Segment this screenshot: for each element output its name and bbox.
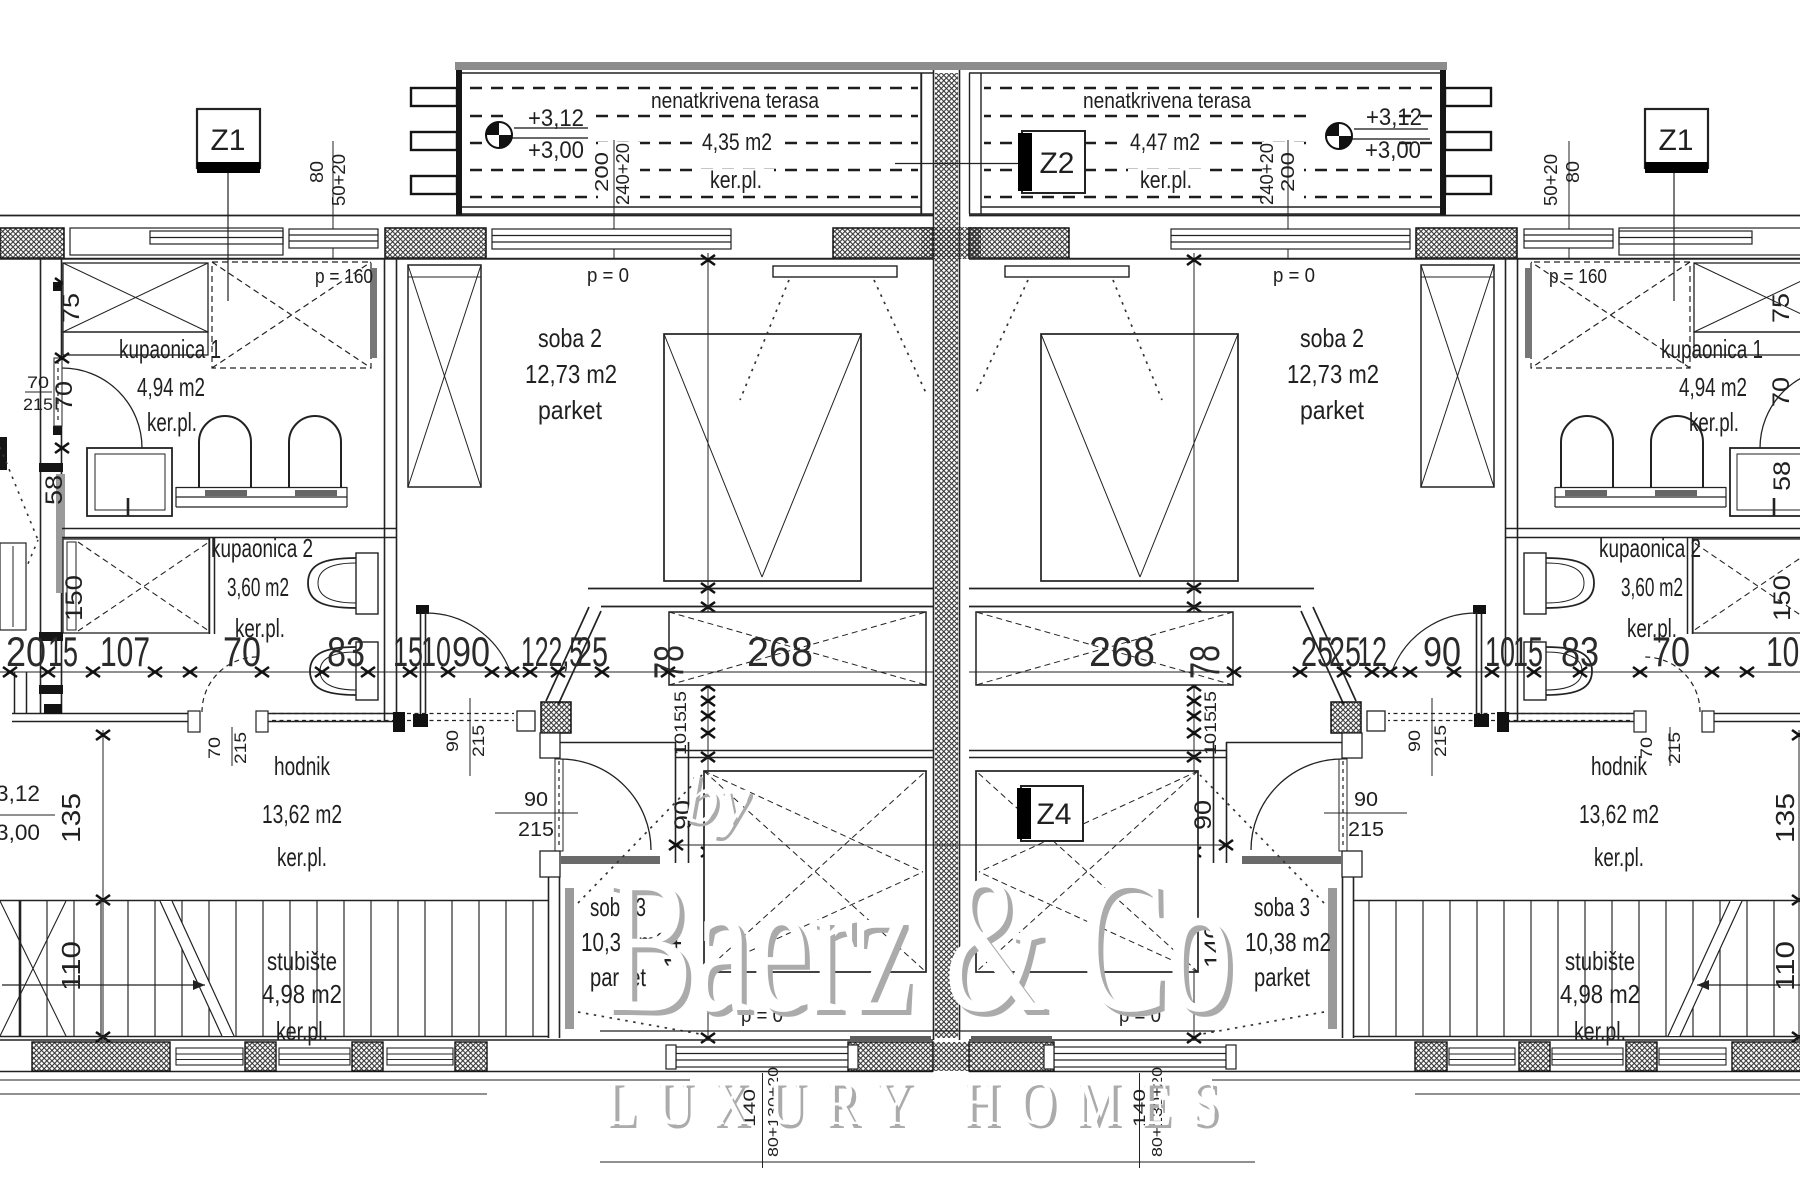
- svg-text:215: 215: [1665, 732, 1684, 764]
- svg-text:58: 58: [41, 475, 68, 505]
- svg-text:200: 200: [592, 152, 612, 192]
- svg-text:ker.pl.: ker.pl.: [147, 407, 197, 437]
- svg-text:+3,00: +3,00: [528, 137, 584, 164]
- svg-text:90: 90: [524, 789, 548, 811]
- svg-text:80: 80: [307, 161, 327, 183]
- svg-text:ker.pl.: ker.pl.: [1689, 407, 1739, 437]
- svg-text:15: 15: [1201, 711, 1220, 733]
- svg-text:hodnik: hodnik: [274, 751, 331, 781]
- svg-text:+3,12: +3,12: [1366, 104, 1422, 131]
- svg-text:parket: parket: [1254, 962, 1311, 992]
- svg-text:215: 215: [23, 395, 53, 414]
- svg-text:kupaonica 2: kupaonica 2: [1599, 533, 1701, 563]
- svg-text:+3,00: +3,00: [1365, 137, 1421, 164]
- svg-text:12,73 m2: 12,73 m2: [525, 359, 617, 389]
- svg-text:215: 215: [518, 819, 554, 841]
- svg-text:3,12: 3,12: [0, 781, 40, 806]
- svg-text:12,73 m2: 12,73 m2: [1287, 359, 1379, 389]
- svg-text:p = 0: p = 0: [587, 265, 629, 287]
- svg-text:3,60 m2: 3,60 m2: [1621, 572, 1683, 602]
- svg-text:80: 80: [1563, 161, 1583, 183]
- svg-text:90: 90: [1354, 789, 1378, 811]
- svg-text:70: 70: [27, 373, 49, 392]
- svg-text:78: 78: [1181, 645, 1228, 679]
- svg-text:25: 25: [576, 628, 608, 675]
- svg-text:107: 107: [1766, 628, 1800, 675]
- svg-text:4,94 m2: 4,94 m2: [137, 372, 205, 402]
- svg-text:ker.pl.: ker.pl.: [276, 1016, 328, 1046]
- svg-text:90: 90: [1190, 800, 1217, 830]
- svg-text:215: 215: [231, 732, 250, 764]
- svg-text:p = 160: p = 160: [1549, 266, 1607, 288]
- svg-text:215: 215: [1348, 819, 1384, 841]
- svg-text:58: 58: [1769, 461, 1796, 491]
- svg-text:ker.pl.: ker.pl.: [1594, 842, 1644, 872]
- svg-text:135: 135: [1770, 793, 1800, 843]
- svg-text:150: 150: [1769, 575, 1796, 621]
- svg-text:Z4: Z4: [1036, 798, 1071, 831]
- svg-text:kupaonica 1: kupaonica 1: [119, 334, 221, 364]
- svg-text:200: 200: [1278, 152, 1298, 192]
- svg-text:3,60 m2: 3,60 m2: [227, 572, 289, 602]
- svg-text:70: 70: [1768, 377, 1795, 407]
- svg-text:50+20: 50+20: [1541, 154, 1561, 206]
- svg-text:268: 268: [747, 628, 813, 675]
- svg-text:110: 110: [1770, 941, 1800, 991]
- svg-text:15: 15: [393, 628, 423, 675]
- svg-text:10: 10: [1485, 628, 1515, 675]
- svg-text:p = 0: p = 0: [1273, 265, 1315, 287]
- svg-text:107: 107: [100, 628, 150, 675]
- svg-text:soba 3: soba 3: [1254, 892, 1310, 922]
- svg-text:Z2: Z2: [1039, 147, 1074, 180]
- svg-text:kupaonica 2: kupaonica 2: [211, 533, 313, 563]
- svg-text:nenatkrivena terasa: nenatkrivena terasa: [1083, 88, 1252, 113]
- svg-text:3,00: 3,00: [0, 820, 40, 845]
- svg-text:Baerz & Co: Baerz & Co: [605, 836, 1233, 1053]
- svg-text:90: 90: [1405, 730, 1424, 752]
- svg-text:10: 10: [1201, 733, 1220, 755]
- svg-text:parket: parket: [1300, 395, 1365, 425]
- svg-text:stubište: stubište: [267, 946, 337, 976]
- svg-text:83: 83: [1561, 628, 1599, 675]
- svg-text:15: 15: [671, 711, 690, 733]
- svg-text:50+20: 50+20: [329, 154, 349, 206]
- svg-text:by: by: [684, 761, 751, 838]
- svg-text:240+20: 240+20: [1257, 143, 1277, 205]
- svg-text:Z1: Z1: [210, 124, 245, 157]
- svg-text:4,47 m2: 4,47 m2: [1130, 129, 1200, 156]
- svg-text:268: 268: [1089, 628, 1155, 675]
- svg-text:parket: parket: [538, 395, 603, 425]
- svg-text:15: 15: [671, 691, 690, 713]
- svg-text:70: 70: [223, 628, 261, 675]
- svg-text:4,35 m2: 4,35 m2: [702, 129, 772, 156]
- svg-text:135: 135: [56, 793, 86, 843]
- svg-text:4,98 m2: 4,98 m2: [1560, 979, 1640, 1009]
- svg-text:ker.pl.: ker.pl.: [710, 167, 762, 194]
- svg-text:4,94 m2: 4,94 m2: [1679, 372, 1747, 402]
- svg-text:90: 90: [443, 730, 462, 752]
- svg-text:15: 15: [1513, 628, 1543, 675]
- svg-text:90: 90: [452, 628, 490, 675]
- svg-text:240+20: 240+20: [613, 143, 633, 205]
- svg-text:110: 110: [56, 941, 86, 991]
- svg-text:ker.pl.: ker.pl.: [277, 842, 327, 872]
- svg-text:70: 70: [51, 381, 78, 411]
- svg-text:nenatkrivena terasa: nenatkrivena terasa: [651, 88, 820, 113]
- svg-text:10: 10: [421, 628, 451, 675]
- svg-text:75: 75: [1768, 293, 1795, 323]
- svg-text:20: 20: [6, 628, 46, 675]
- svg-text:90: 90: [1423, 628, 1461, 675]
- svg-text:15: 15: [1201, 691, 1220, 713]
- svg-text:13,62 m2: 13,62 m2: [1579, 799, 1659, 829]
- svg-text:10,38 m2: 10,38 m2: [1245, 927, 1331, 957]
- svg-text:kupaonica 1: kupaonica 1: [1661, 334, 1763, 364]
- svg-text:+3,12: +3,12: [528, 105, 584, 132]
- svg-text:215: 215: [1431, 725, 1450, 757]
- svg-text:150: 150: [61, 575, 88, 621]
- svg-text:soba 2: soba 2: [1300, 323, 1364, 353]
- svg-text:13,62 m2: 13,62 m2: [262, 799, 342, 829]
- svg-text:ker.pl.: ker.pl.: [1574, 1016, 1626, 1046]
- svg-text:stubište: stubište: [1565, 946, 1635, 976]
- svg-text:soba 2: soba 2: [538, 323, 602, 353]
- svg-text:hodnik: hodnik: [1591, 751, 1648, 781]
- svg-text:70: 70: [205, 737, 224, 759]
- svg-text:p = 160: p = 160: [315, 266, 373, 288]
- svg-text:78: 78: [645, 645, 692, 679]
- svg-text:ker.pl.: ker.pl.: [1140, 167, 1192, 194]
- svg-text:70: 70: [1652, 628, 1690, 675]
- svg-text:12: 12: [1357, 628, 1387, 675]
- svg-text:122,5: 122,5: [521, 628, 583, 675]
- svg-text:Z1: Z1: [1658, 124, 1693, 157]
- svg-text:215: 215: [469, 725, 488, 757]
- svg-text:15: 15: [48, 628, 78, 675]
- svg-text:LUXURY HOMES: LUXURY HOMES: [605, 1067, 1238, 1139]
- svg-text:83: 83: [327, 628, 365, 675]
- svg-text:4,98 m2: 4,98 m2: [262, 979, 342, 1009]
- svg-text:10: 10: [671, 733, 690, 755]
- svg-text:75: 75: [58, 293, 85, 323]
